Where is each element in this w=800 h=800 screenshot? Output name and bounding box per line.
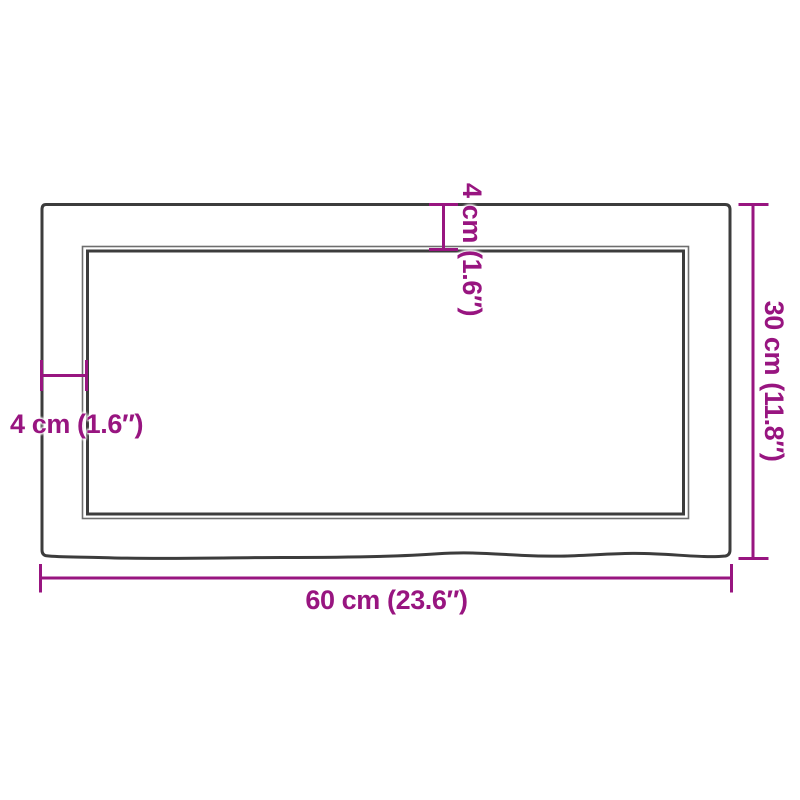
top-thickness-dimension-label: 4 cm (1.6″)	[456, 183, 487, 316]
left-thickness-dimension-line	[41, 360, 87, 391]
width-dimension-label: 60 cm (23.6″)	[40, 585, 733, 616]
left-thickness-dimension-label: 4 cm (1.6″)	[10, 409, 143, 440]
dimension-diagram: 60 cm (23.6″) 30 cm (11.8″) 4 cm (1.6″) …	[0, 0, 800, 800]
top-thickness-dimension-line	[429, 204, 458, 250]
slab-inner-edge-outer	[83, 247, 689, 519]
dimension-diagram-canvas	[0, 0, 800, 800]
slab-inner-edge-inner	[88, 251, 684, 514]
height-dimension-label: 30 cm (11.8″)	[758, 301, 789, 462]
slab-outline	[42, 205, 730, 559]
